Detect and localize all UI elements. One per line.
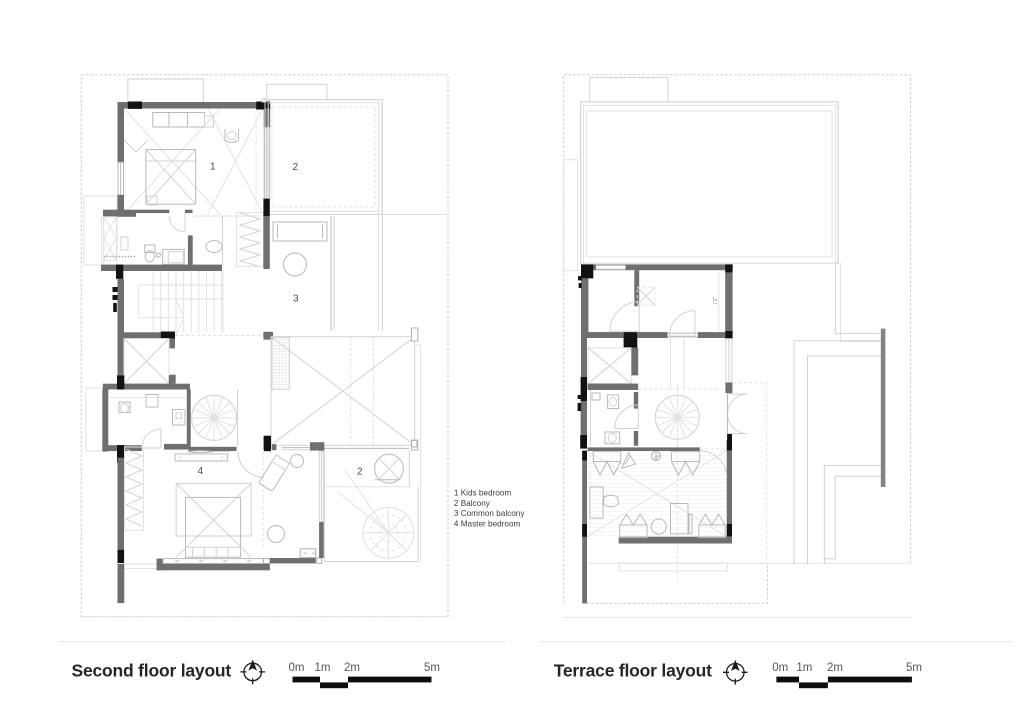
- svg-text:1: 1: [210, 162, 216, 173]
- svg-text:2m: 2m: [344, 662, 360, 674]
- svg-text:Terrace floor layout: Terrace floor layout: [554, 661, 712, 681]
- svg-text:7'2": 7'2": [713, 296, 719, 305]
- svg-text:5m: 5m: [424, 662, 440, 674]
- svg-text:3: 3: [293, 294, 299, 305]
- svg-text:0m: 0m: [289, 662, 305, 674]
- svg-text:3 Common balcony: 3 Common balcony: [454, 509, 525, 518]
- svg-text:4 Master bedroom: 4 Master bedroom: [454, 519, 521, 528]
- svg-text:1m: 1m: [315, 662, 331, 674]
- svg-text:5m: 5m: [906, 662, 922, 674]
- svg-text:2: 2: [293, 162, 299, 173]
- svg-text:1 Kids bedroom: 1 Kids bedroom: [454, 489, 512, 498]
- svg-text:1m: 1m: [796, 662, 812, 674]
- svg-text:2m: 2m: [827, 662, 843, 674]
- svg-text:0m: 0m: [772, 662, 788, 674]
- svg-text:2: 2: [357, 467, 363, 478]
- svg-text:2 Balcony: 2 Balcony: [454, 499, 491, 508]
- svg-text:Second floor layout: Second floor layout: [72, 661, 232, 681]
- svg-text:4: 4: [198, 466, 204, 477]
